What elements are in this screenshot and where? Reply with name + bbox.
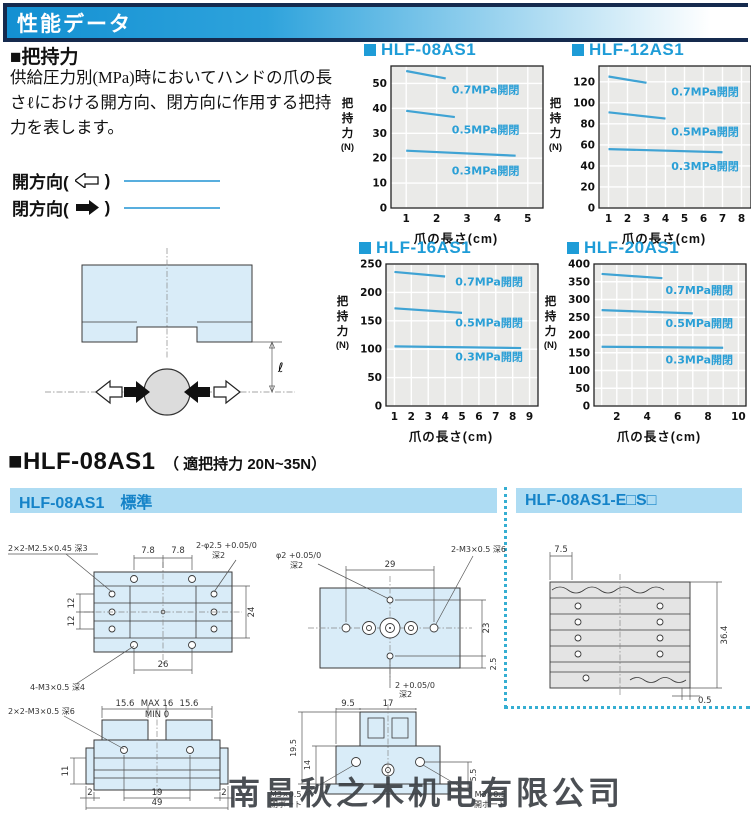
- svg-text:0.7MPa開閉: 0.7MPa開閉: [671, 85, 739, 98]
- dim-24: 24: [247, 607, 257, 618]
- svg-text:30: 30: [372, 128, 387, 140]
- svg-text:5: 5: [524, 213, 531, 225]
- blue-square-icon: [567, 242, 579, 254]
- model-section-heading: ■HLF-08AS1 （ 適把持力 20N~35N）: [8, 448, 326, 476]
- page-header: 性能データ: [3, 3, 748, 42]
- svg-text:0.5MPa開閉: 0.5MPa開閉: [671, 125, 739, 138]
- svg-text:0.3MPa開閉: 0.3MPa開閉: [665, 353, 733, 366]
- solid-right-arrow-icon: [75, 200, 99, 215]
- svg-text:120: 120: [573, 76, 595, 88]
- svg-text:3: 3: [463, 213, 470, 225]
- svg-text:0: 0: [583, 401, 590, 413]
- option-model-header-bar: HLF-08AS1-E□S□: [516, 488, 742, 513]
- top-view-drawing: 7.8 7.8 2×2-M2.5×0.45 深3 2-φ2.5 +0.05/0 …: [6, 540, 264, 698]
- svg-text:5: 5: [681, 213, 688, 225]
- svg-text:1: 1: [605, 213, 612, 225]
- dim-17: 17: [383, 699, 394, 709]
- grip-force-plot: 0501001502002501234567890.7MPa開閉0.5MPa開閉…: [352, 259, 541, 429]
- svg-text:100: 100: [573, 97, 595, 109]
- svg-text:400: 400: [568, 259, 590, 271]
- svg-text:0.5MPa開閉: 0.5MPa開閉: [452, 123, 520, 136]
- svg-text:4: 4: [643, 411, 650, 423]
- grip-force-plot: 0501001502002503003504002468100.7MPa開閉0.…: [560, 259, 749, 429]
- chart-title-row: HLF-12AS1: [572, 40, 751, 60]
- svg-text:6: 6: [475, 411, 482, 423]
- chart-hlf-08as1: HLF-08AS1 把持力(N) 01020304050123450.7MPa開…: [338, 40, 546, 247]
- legend-close-label: 閉方向(: [12, 195, 69, 220]
- dim-15-6-left: 15.6: [116, 699, 135, 709]
- y-axis-label: 把持力(N): [333, 295, 352, 352]
- blue-square-icon: [364, 44, 376, 56]
- bottom-view-drawing: 29 φ2 +0.05/0 深2 2-M3×0.5 深6 23 2.5 2 +0…: [268, 540, 508, 698]
- bottom-pin-hole-label: 2 +0.05/0: [395, 681, 435, 690]
- legend-open-direction: 開方向( ): [12, 168, 220, 193]
- grip-force-plot: 020406080100120123456780.7MPa開閉0.5MPa開閉0…: [565, 61, 751, 231]
- svg-text:0.3MPa開閉: 0.3MPa開閉: [671, 160, 739, 173]
- y-axis-label: 把持力(N): [541, 295, 560, 352]
- chart-hlf-16as1: HLF-16AS1 把持力(N) 05010015020025012345678…: [333, 238, 541, 445]
- svg-text:2: 2: [613, 411, 620, 423]
- svg-text:7: 7: [492, 411, 499, 423]
- svg-text:20: 20: [580, 181, 595, 193]
- dim-min-0: MIN 0: [145, 710, 169, 720]
- svg-text:4: 4: [662, 213, 669, 225]
- legend-close-direction: 閉方向( ): [12, 195, 220, 220]
- dowel-hole-depth: 深2: [212, 551, 225, 560]
- legend-open-label: 開方向(: [12, 168, 69, 193]
- svg-text:200: 200: [568, 330, 590, 342]
- grip-force-plot: 01020304050123450.7MPa開閉0.5MPa開閉0.3MPa開閉: [357, 61, 546, 231]
- svg-text:200: 200: [360, 287, 382, 299]
- svg-text:8: 8: [738, 213, 745, 225]
- close-direction-line: [124, 207, 220, 209]
- svg-text:9: 9: [526, 411, 533, 423]
- svg-text:4: 4: [441, 411, 448, 423]
- svg-text:2: 2: [408, 411, 415, 423]
- svg-text:0.5MPa開閉: 0.5MPa開閉: [665, 317, 733, 330]
- svg-text:0.3MPa開閉: 0.3MPa開閉: [455, 351, 523, 364]
- svg-text:300: 300: [568, 294, 590, 306]
- gripper-schematic-drawing: ℓ: [20, 230, 320, 425]
- svg-text:40: 40: [372, 103, 387, 115]
- finger-tap-label: 2×2-M3×0.5 深6: [8, 707, 75, 716]
- svg-text:50: 50: [367, 372, 382, 384]
- open-left-arrow-icon: [75, 173, 99, 188]
- tap-label: 2×2-M2.5×0.45 深3: [8, 544, 88, 553]
- dim-11: 11: [61, 766, 71, 777]
- grip-section-heading: ■把持力: [10, 42, 78, 69]
- dim-2-left: 2: [87, 788, 92, 798]
- svg-text:1: 1: [402, 213, 409, 225]
- y-axis-label: 把持力(N): [546, 97, 565, 154]
- svg-text:8: 8: [704, 411, 711, 423]
- svg-text:150: 150: [360, 315, 382, 327]
- front-view-drawing: 15.6 MAX 16 15.6 MIN 0 2×2-M3×0.5 深6 11 …: [6, 698, 264, 810]
- svg-text:10: 10: [372, 178, 387, 190]
- dim-7-5: 7.5: [554, 545, 568, 555]
- svg-text:250: 250: [360, 259, 382, 271]
- blue-square-icon: [359, 242, 371, 254]
- standard-model-header-bar: HLF-08AS1 標準: [10, 488, 497, 513]
- dim-12-upper: 12: [67, 598, 77, 609]
- chart-title: HLF-08AS1: [381, 40, 476, 60]
- dim-2-right: 2: [221, 788, 226, 798]
- svg-text:50: 50: [372, 78, 387, 90]
- page-title: 性能データ: [7, 8, 132, 38]
- pin-hole-depth: 深2: [290, 561, 303, 570]
- dim-36-4: 36.4: [720, 626, 730, 645]
- model-title: ■HLF-08AS1: [8, 448, 156, 475]
- svg-text:2: 2: [624, 213, 631, 225]
- chart-title-row: HLF-08AS1: [364, 40, 546, 60]
- svg-text:2: 2: [433, 213, 440, 225]
- svg-text:0: 0: [380, 203, 387, 215]
- dowel-hole-label: 2-φ2.5 +0.05/0: [196, 541, 257, 550]
- svg-text:0.7MPa開閉: 0.7MPa開閉: [452, 83, 520, 96]
- svg-text:0.7MPa開閉: 0.7MPa開閉: [455, 276, 523, 289]
- svg-text:100: 100: [568, 365, 590, 377]
- svg-text:8: 8: [509, 411, 516, 423]
- svg-text:60: 60: [580, 139, 595, 151]
- svg-text:250: 250: [568, 312, 590, 324]
- option-view-drawing: 7.5 36.4 0.5: [512, 540, 750, 705]
- dim-29: 29: [385, 560, 396, 570]
- svg-text:6: 6: [674, 411, 681, 423]
- option-model-label: HLF-08AS1-E□S□: [525, 492, 656, 510]
- blue-square-icon: [572, 44, 584, 56]
- svg-text:50: 50: [575, 383, 590, 395]
- svg-text:5: 5: [458, 411, 465, 423]
- svg-text:0: 0: [375, 401, 382, 413]
- dim-max-16: MAX 16: [141, 699, 174, 709]
- svg-text:20: 20: [372, 153, 387, 165]
- watermark-text: 南昌秋之木机电有限公司: [228, 768, 624, 813]
- finger-length-dim-label: ℓ: [277, 361, 283, 376]
- y-axis-label: 把持力(N): [338, 97, 357, 154]
- svg-text:0.7MPa開閉: 0.7MPa開閉: [665, 284, 733, 297]
- svg-text:350: 350: [568, 276, 590, 288]
- svg-text:3: 3: [424, 411, 431, 423]
- svg-text:0.5MPa開閉: 0.5MPa開閉: [455, 316, 523, 329]
- svg-text:80: 80: [580, 118, 595, 130]
- dim-7-8-right: 7.8: [171, 546, 185, 556]
- svg-text:7: 7: [719, 213, 726, 225]
- chart-title: HLF-20AS1: [584, 238, 679, 258]
- pin-hole-label: φ2 +0.05/0: [276, 551, 321, 560]
- dim-9-5: 9.5: [341, 699, 355, 709]
- dim-19: 19: [152, 788, 163, 798]
- m3-tap-label: 2-M3×0.5 深6: [451, 545, 506, 554]
- svg-text:4: 4: [494, 213, 501, 225]
- dim-23: 23: [482, 623, 492, 634]
- svg-text:3: 3: [643, 213, 650, 225]
- svg-text:150: 150: [568, 347, 590, 359]
- svg-text:0.3MPa開閉: 0.3MPa開閉: [452, 164, 520, 177]
- standard-model-label: HLF-08AS1 標準: [19, 489, 152, 513]
- chart-title: HLF-12AS1: [589, 40, 684, 60]
- chart-title-row: HLF-16AS1: [359, 238, 541, 258]
- bottom-pin-hole-depth: 深2: [399, 690, 412, 698]
- svg-text:6: 6: [700, 213, 707, 225]
- chart-hlf-20as1: HLF-20AS1 把持力(N) 05010015020025030035040…: [541, 238, 749, 445]
- bottom-tap-label: 4-M3×0.5 深4: [30, 683, 85, 692]
- svg-text:40: 40: [580, 160, 595, 172]
- grip-description: 供給圧力別(MPa)時においてハンドの爪の長さℓにおける開方向、閉方向に作用する…: [10, 66, 338, 140]
- legend-open-paren: ): [105, 171, 111, 191]
- chart-title-row: HLF-20AS1: [567, 238, 749, 258]
- dim-12-lower: 12: [67, 616, 77, 627]
- dotted-separator-horizontal: [504, 706, 750, 709]
- dim-19-5: 19.5: [289, 739, 298, 757]
- chart-hlf-12as1: HLF-12AS1 把持力(N) 02040608010012012345678…: [546, 40, 751, 247]
- svg-text:0: 0: [588, 203, 595, 215]
- svg-text:10: 10: [731, 411, 746, 423]
- datasheet-page: 性能データ ■把持力 供給圧力別(MPa)時においてハンドの爪の長さℓにおける開…: [0, 0, 751, 813]
- chart-title: HLF-16AS1: [376, 238, 471, 258]
- legend-close-paren: ): [105, 198, 111, 218]
- open-direction-line: [124, 180, 220, 182]
- dim-26: 26: [158, 660, 169, 670]
- dim-2-5: 2.5: [489, 658, 498, 671]
- svg-text:100: 100: [360, 344, 382, 356]
- dim-0-5: 0.5: [698, 696, 712, 705]
- dim-49: 49: [152, 798, 163, 808]
- model-grip-range: （ 適把持力 20N~35N）: [164, 456, 326, 473]
- dim-15-6-right: 15.6: [180, 699, 199, 709]
- svg-text:1: 1: [391, 411, 398, 423]
- dim-7-8-left: 7.8: [141, 546, 155, 556]
